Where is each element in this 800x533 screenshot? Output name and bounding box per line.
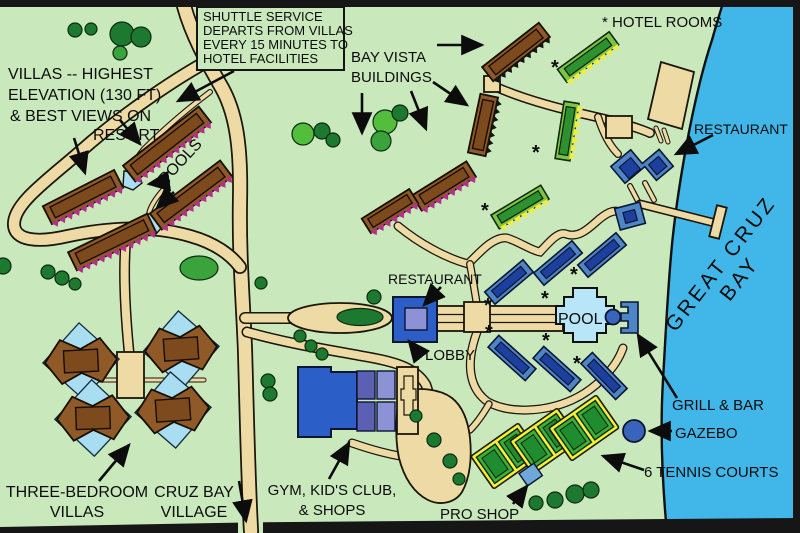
- hotel-rooms-label: * HOTEL ROOMS: [602, 14, 722, 31]
- beach-restaurant-label: RESTAURANT: [694, 121, 788, 137]
- lobby-label: LOBBY: [425, 347, 475, 364]
- svg-text:*: *: [481, 200, 489, 222]
- main-restaurant-label: RESTAURANT: [388, 271, 482, 287]
- svg-text:*: *: [484, 295, 492, 317]
- svg-text:RESORT: RESORT: [93, 127, 160, 144]
- svg-text:ELEVATION (130 FT): ELEVATION (130 FT): [8, 87, 161, 104]
- beach-plaza: [606, 116, 632, 138]
- svg-text:& BEST VIEWS ON: & BEST VIEWS ON: [10, 108, 151, 125]
- shuttle-note: SHUTTLE SERVICE DEPARTS FROM VILLAS EVER…: [197, 7, 353, 70]
- svg-text:BUILDINGS: BUILDINGS: [351, 69, 432, 86]
- svg-text:*: *: [573, 353, 581, 375]
- svg-text:VILLAGE: VILLAGE: [161, 504, 228, 521]
- svg-text:*: *: [570, 264, 578, 286]
- villas-plaza: [117, 352, 144, 398]
- gym-label: GYM, KID'S CLUB,: [268, 482, 397, 499]
- svg-text:*: *: [532, 142, 540, 164]
- svg-text:& SHOPS: & SHOPS: [299, 502, 366, 519]
- grill-bar-label: GRILL & BAR: [672, 397, 764, 414]
- bay-vista-label: BAY VISTA: [351, 49, 426, 66]
- svg-text:EVERY 15 MINUTES TO: EVERY 15 MINUTES TO: [203, 37, 348, 52]
- pool-label: POOL: [558, 311, 603, 328]
- hot-tub: [606, 310, 621, 325]
- grill-and-bar-building: [621, 302, 638, 333]
- cruz-bay-village-label: CRUZ BAY: [154, 484, 234, 501]
- tennis-label: 6 TENNIS COURTS: [644, 464, 778, 481]
- svg-text:SHUTTLE SERVICE: SHUTTLE SERVICE: [203, 9, 323, 24]
- villas-note-label: VILLAS -- HIGHEST: [8, 66, 153, 83]
- drive-island: [337, 309, 383, 326]
- gazebo-label: GAZEBO: [675, 425, 738, 442]
- svg-text:*: *: [542, 330, 550, 352]
- svg-text:*: *: [551, 57, 559, 79]
- svg-text:DEPARTS FROM VILLAS: DEPARTS FROM VILLAS: [203, 23, 353, 38]
- svg-text:HOTEL FACILITIES: HOTEL FACILITIES: [203, 51, 318, 66]
- resort-map: * * * * * * * * * SHUTTLE SERVICE DEPART: [0, 0, 800, 533]
- gym-kids-club-shops-building: [298, 367, 395, 437]
- main-restaurant-lobby-building: [393, 297, 437, 342]
- svg-text:*: *: [541, 288, 549, 310]
- map-canvas: * * * * * * * * * SHUTTLE SERVICE DEPART: [0, 0, 800, 533]
- gazebo-building: [623, 420, 645, 442]
- three-bedroom-label: THREE-BEDROOM: [6, 484, 148, 501]
- svg-text:VILLAS: VILLAS: [50, 504, 104, 521]
- svg-text:*: *: [485, 322, 493, 344]
